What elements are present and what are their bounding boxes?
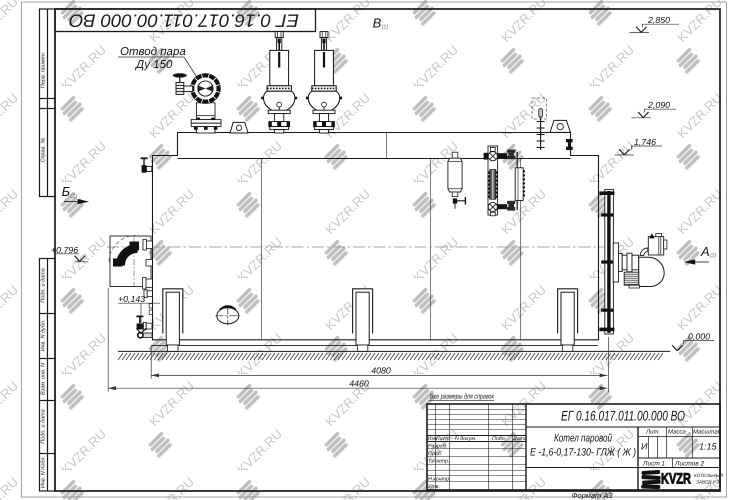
svg-text:КОТЕЛЬНЫЙ: КОТЕЛЬНЫЙ: [694, 472, 724, 478]
svg-text:Дата: Дата: [512, 436, 527, 442]
svg-text:Отвод пара: Отвод пара: [120, 46, 186, 58]
svg-text:А: А: [700, 244, 710, 259]
svg-text:KVZR: KVZR: [661, 471, 691, 488]
svg-text:Подп. и дата: Подп. и дата: [41, 409, 47, 443]
svg-text:ЕГ 0.16.017.011.00.000 ВО: ЕГ 0.16.017.011.00.000 ВО: [561, 408, 685, 424]
svg-text:Справ. №: Справ. №: [41, 137, 47, 162]
svg-text:4080: 4080: [371, 366, 391, 376]
svg-text:Т.контр.: Т.контр.: [428, 459, 449, 465]
svg-text:ЗАВОД РЭ: ЗАВОД РЭ: [696, 480, 720, 485]
svg-text:2,090: 2,090: [647, 100, 670, 110]
svg-text:Разраб.: Разраб.: [428, 444, 447, 450]
svg-text:Ду 150: Ду 150: [134, 59, 173, 71]
svg-text:1,746: 1,746: [634, 137, 656, 147]
svg-text:Подп.: Подп.: [492, 436, 506, 442]
svg-text:Лист: Лист: [435, 436, 450, 442]
svg-text:Взам. инв. N: Взам. инв. N: [41, 363, 47, 395]
svg-text:Подп. и дата: Подп. и дата: [41, 268, 47, 302]
svg-text:В: В: [373, 16, 382, 31]
svg-text:N докум.: N докум.: [455, 436, 476, 442]
svg-text:Инв. N подл.: Инв. N подл.: [41, 456, 47, 488]
svg-text:(2): (2): [382, 25, 389, 31]
svg-text:Б: Б: [62, 184, 71, 199]
svg-text:(2): (2): [70, 193, 77, 199]
svg-text:(2): (2): [710, 253, 717, 259]
svg-text:Утв.: Утв.: [428, 484, 440, 490]
svg-text:1:15: 1:15: [699, 442, 718, 452]
svg-text:И: И: [641, 442, 648, 452]
svg-text:0,000: 0,000: [688, 331, 710, 341]
svg-text:Формат А3: Формат А3: [571, 491, 613, 500]
svg-text:Листов 2: Листов 2: [674, 461, 704, 468]
svg-text:Котел паровой: Котел паровой: [554, 433, 612, 445]
svg-text:Н.контр.: Н.контр.: [428, 477, 450, 483]
svg-text:2,850: 2,850: [647, 15, 670, 25]
svg-text:Лит.: Лит.: [645, 429, 660, 436]
svg-text:Е -1,6-0,17-130- ГЛЖ ( Ж ): Е -1,6-0,17-130- ГЛЖ ( Ж ): [530, 447, 636, 459]
svg-text:ЕГ 0.16.017.011.00.000 ВО: ЕГ 0.16.017.011.00.000 ВО: [69, 11, 299, 31]
svg-text:Все размеры для справок: Все размеры для справок: [430, 393, 495, 401]
svg-text:Перв. примен.: Перв. примен.: [41, 52, 47, 89]
svg-text:Масса: Масса: [668, 429, 686, 436]
svg-text:Инв. N дубл.: Инв. N дубл.: [40, 320, 47, 352]
svg-text:Масштаб: Масштаб: [693, 429, 722, 436]
svg-text:4460: 4460: [349, 378, 369, 388]
svg-text:+0,796: +0,796: [51, 245, 78, 255]
svg-text:Лист 1: Лист 1: [642, 461, 666, 468]
svg-text:+0,143: +0,143: [118, 294, 145, 304]
svg-text:Проб.: Проб.: [428, 451, 442, 457]
